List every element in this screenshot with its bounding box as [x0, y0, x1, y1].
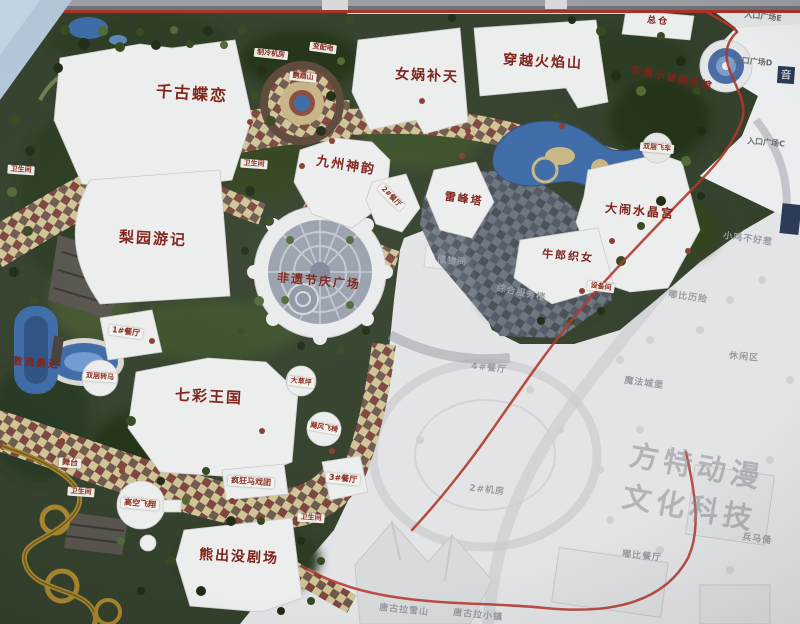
frame-tab — [545, 0, 567, 9]
sign-boxes — [779, 203, 800, 235]
attraction-label-nvwa-butian: 女娲补天 — [395, 67, 460, 84]
attraction-label-qicai-wangguo: 七彩王国 — [175, 388, 244, 407]
attraction-label-chuanyue-huoyanshan: 穿越火焰山 — [503, 53, 584, 71]
ride-skyflyer-stub — [163, 500, 181, 512]
attraction-label-liyuan-youji: 梨园游记 — [119, 230, 188, 249]
park-map-photo: 千古蝶恋 女娲补天 穿越火焰山 总仓 九州神韵 梨园游记 非遗节庆广场 雷峰塔 … — [0, 0, 800, 624]
restroom-tag: 卫生间 — [67, 487, 95, 498]
music-sign: 音 — [777, 66, 795, 84]
building-qicai — [128, 358, 298, 478]
small-ride-circle — [140, 535, 156, 551]
restroom-tag: 卫生间 — [240, 159, 268, 170]
building-qiangu-dielian — [54, 40, 252, 190]
attraction-label-xiongchumo-juchang: 熊出没剧场 — [199, 548, 280, 566]
frame-tab — [322, 0, 348, 10]
park-map-svg — [0, 0, 800, 624]
facility-tag-stage: 舞台 — [59, 457, 82, 469]
attraction-label-zongcang: 总仓 — [647, 17, 670, 28]
restroom-tag: 卫生间 — [7, 165, 35, 176]
restroom-tag: 卫生间 — [297, 513, 325, 524]
